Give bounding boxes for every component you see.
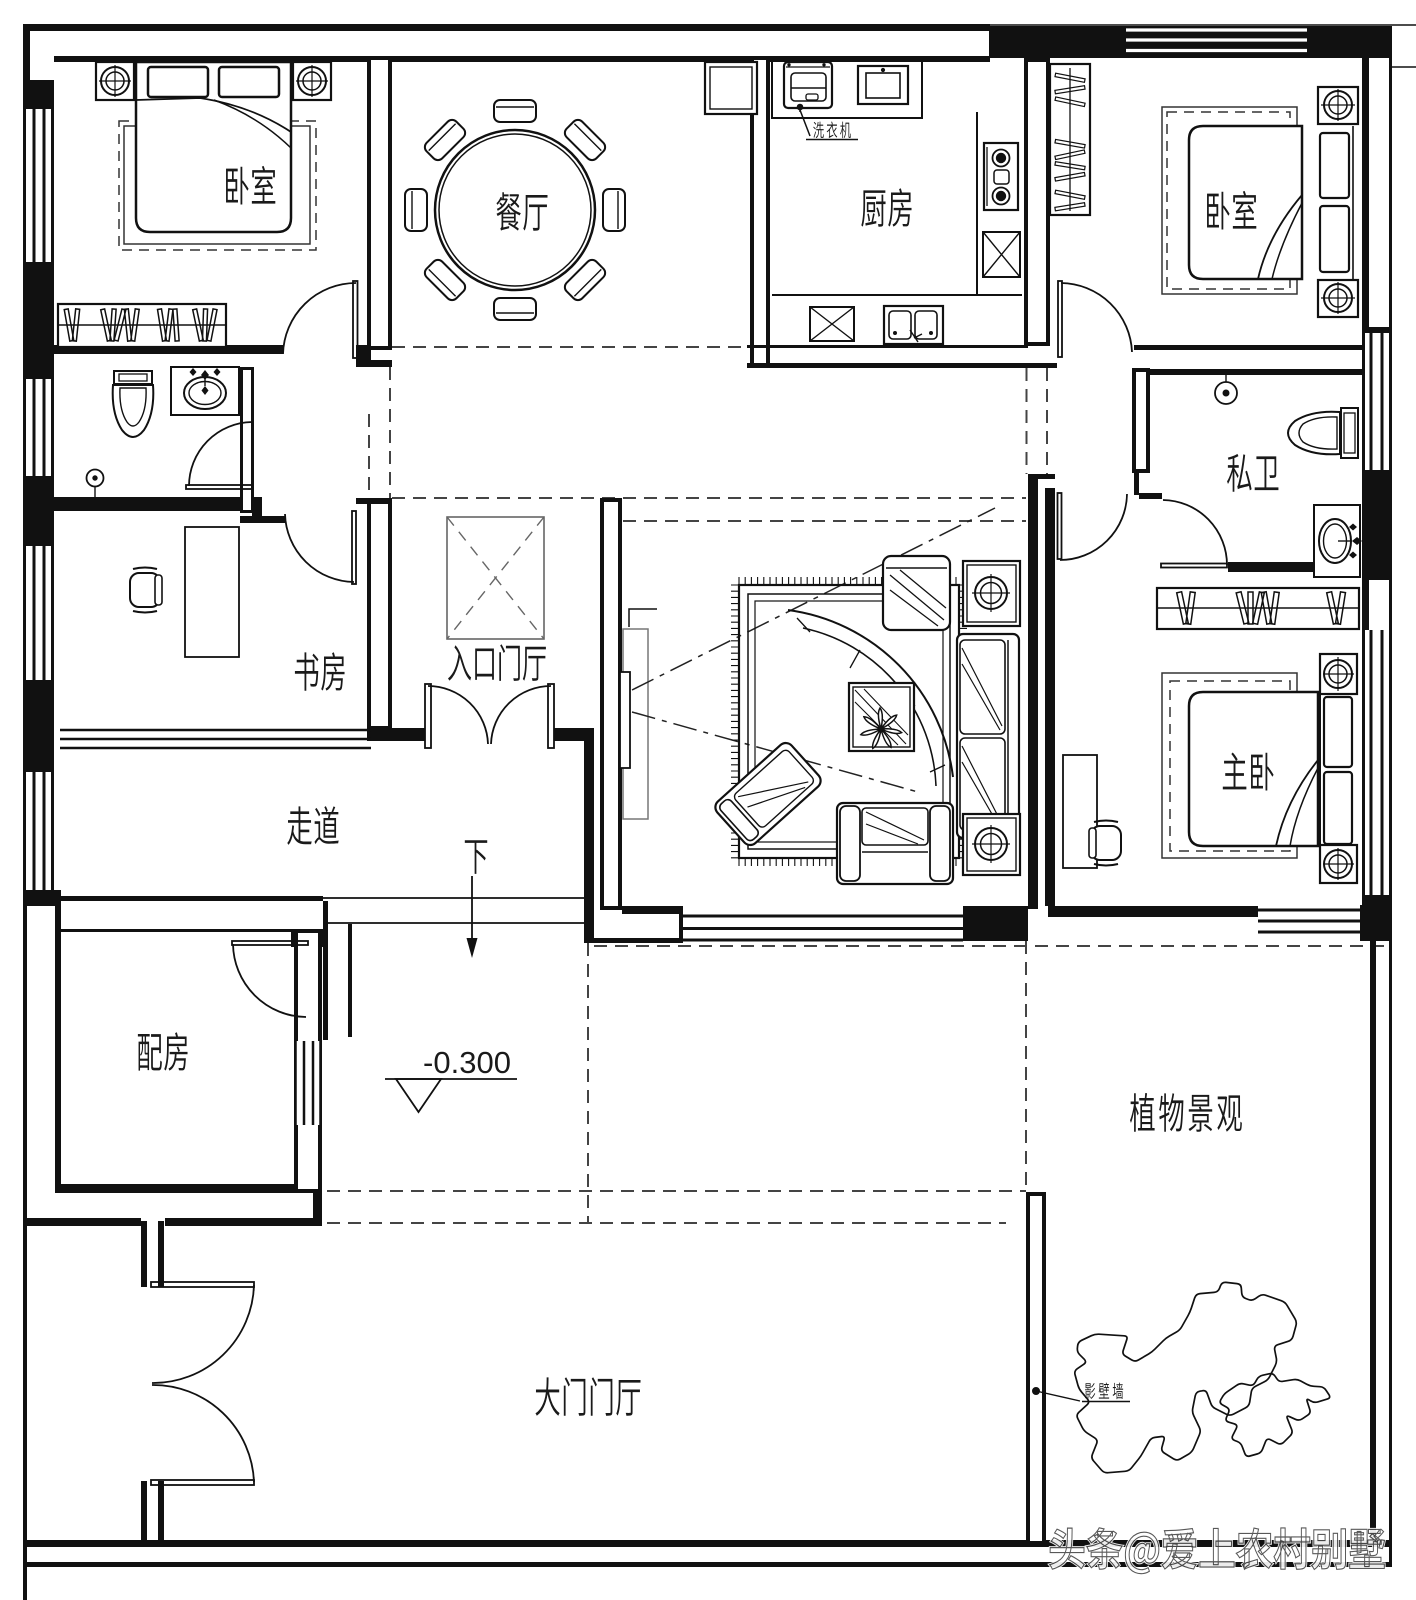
svg-text:-0.300: -0.300 — [423, 1045, 511, 1080]
